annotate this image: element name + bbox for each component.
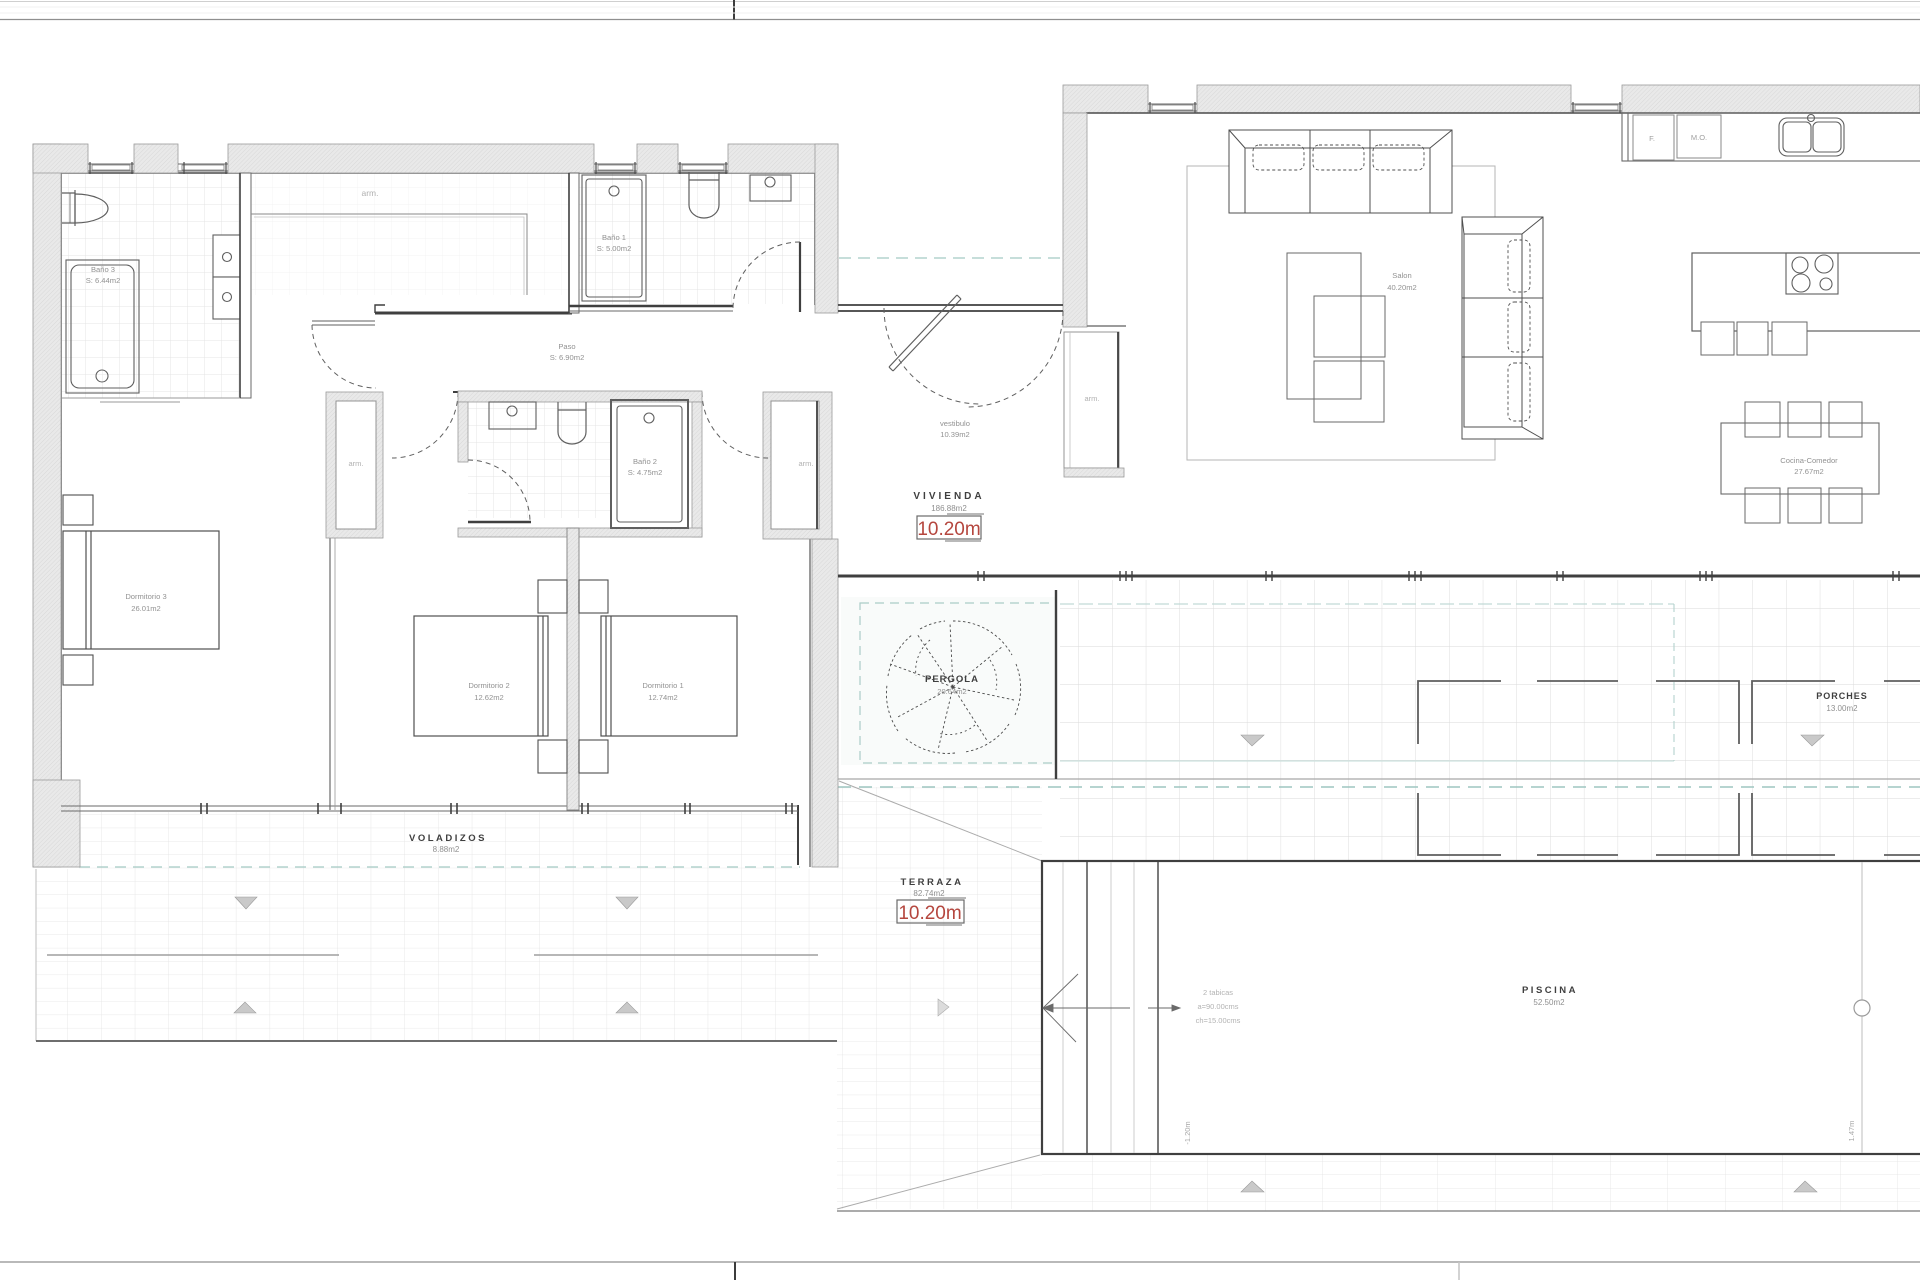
svg-text:TERRAZA: TERRAZA	[901, 877, 964, 888]
svg-text:8.88m2: 8.88m2	[433, 845, 460, 854]
svg-text:2 tabicas: 2 tabicas	[1203, 988, 1233, 997]
svg-text:40.20m2: 40.20m2	[1387, 283, 1417, 292]
svg-text:a=90.00cms: a=90.00cms	[1197, 1002, 1238, 1011]
svg-text:Cocina-Comedor: Cocina-Comedor	[1780, 456, 1838, 465]
svg-text:Baño 3: Baño 3	[91, 265, 115, 274]
svg-text:Dormitorio 1: Dormitorio 1	[642, 681, 683, 690]
svg-text:10.39m2: 10.39m2	[940, 430, 970, 439]
svg-text:arm.: arm.	[362, 188, 379, 198]
svg-text:10.20m: 10.20m	[898, 903, 961, 924]
svg-text:M.O.: M.O.	[1691, 133, 1707, 142]
svg-text:vestibulo: vestibulo	[940, 419, 970, 428]
svg-text:S: 6.90m2: S: 6.90m2	[550, 353, 585, 362]
svg-text:Dormitorio 3: Dormitorio 3	[125, 592, 166, 601]
svg-text:13.00m2: 13.00m2	[1826, 704, 1858, 713]
svg-text:Paso: Paso	[558, 342, 575, 351]
svg-text:PERGOLA: PERGOLA	[925, 674, 979, 685]
svg-text:-1.20m: -1.20m	[1183, 1121, 1192, 1144]
svg-text:PORCHES: PORCHES	[1816, 691, 1868, 701]
svg-text:F.: F.	[1649, 134, 1655, 143]
svg-text:186.88m2: 186.88m2	[931, 504, 967, 513]
svg-text:20.64m2: 20.64m2	[937, 687, 967, 696]
svg-text:arm.: arm.	[799, 459, 814, 468]
svg-text:26.01m2: 26.01m2	[131, 604, 161, 613]
svg-text:Salon: Salon	[1392, 271, 1411, 280]
svg-text:S: 5.00m2: S: 5.00m2	[597, 244, 632, 253]
svg-text:52.50m2: 52.50m2	[1533, 998, 1565, 1007]
svg-text:82.74m2: 82.74m2	[913, 889, 945, 898]
svg-text:PISCINA: PISCINA	[1522, 985, 1578, 996]
svg-text:27.67m2: 27.67m2	[1794, 467, 1824, 476]
svg-text:12.62m2: 12.62m2	[474, 693, 504, 702]
svg-text:Dormitorio 2: Dormitorio 2	[468, 681, 509, 690]
svg-text:S: 6.44m2: S: 6.44m2	[86, 276, 121, 285]
svg-text:10.20m: 10.20m	[917, 519, 980, 540]
svg-text:VOLADIZOS: VOLADIZOS	[409, 833, 487, 844]
svg-text:Baño 1: Baño 1	[602, 233, 626, 242]
svg-text:Baño 2: Baño 2	[633, 457, 657, 466]
svg-text:arm.: arm.	[349, 459, 364, 468]
svg-text:ch=15.00cms: ch=15.00cms	[1196, 1016, 1241, 1025]
svg-text:1.47m: 1.47m	[1847, 1121, 1856, 1142]
svg-text:S: 4.75m2: S: 4.75m2	[628, 468, 663, 477]
svg-text:12.74m2: 12.74m2	[648, 693, 678, 702]
svg-text:VIVIENDA: VIVIENDA	[913, 491, 984, 502]
svg-text:arm.: arm.	[1085, 394, 1100, 403]
